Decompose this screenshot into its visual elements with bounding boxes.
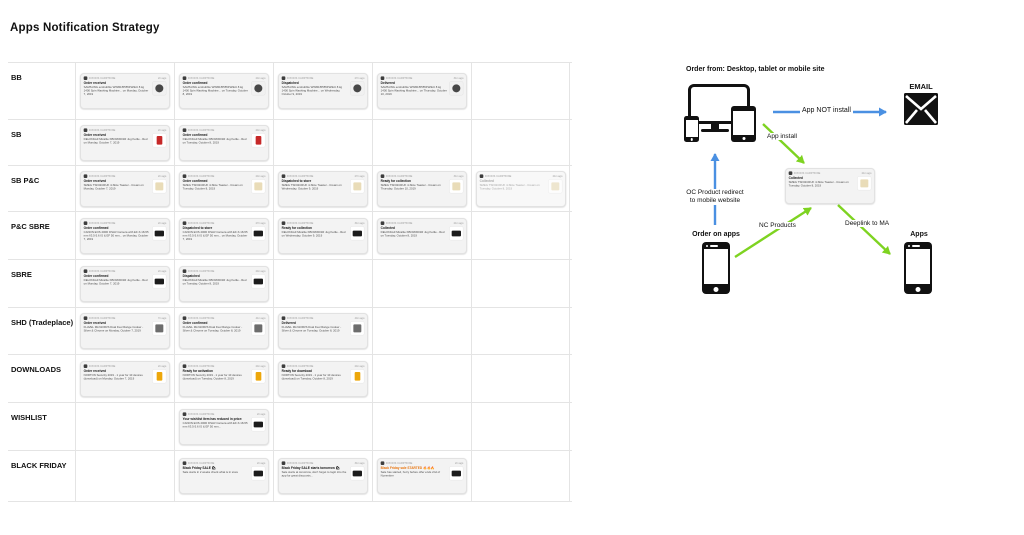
notification-header: DIXONS CARPHONE21m ago: [381, 221, 464, 225]
app-name: DIXONS CARPHONE: [188, 269, 214, 272]
timestamp: 2m ago: [158, 174, 166, 177]
row-label: P&C SBRE: [8, 212, 75, 259]
app-name: DIXONS CARPHONE: [386, 462, 412, 465]
notification-card: DIXONS CARPHONE2m agoOrder receivedNORTO…: [80, 361, 170, 397]
notification-header: DIXONS CARPHONE2m ago: [84, 221, 167, 225]
notification-message: SMEG TSF02CRUK 4-Slice Toaster - Cream o…: [282, 183, 349, 190]
notification-card-inner: DIXONS CARPHONE31m agoReady for collecti…: [378, 172, 466, 206]
notification-message: CANON EOS 200D DSLR Camera with EF-S 18-…: [183, 230, 250, 240]
notification-body-row: Black Friday sale STARTED 🔥🔥🔥Sale has st…: [381, 466, 464, 480]
oc-redirect-line1: OC Product redirect: [675, 189, 755, 197]
notification-title: Dispatched to store: [282, 179, 349, 183]
arrow-label-deeplink: Deeplink to MA: [843, 220, 891, 227]
timestamp: 27m ago: [355, 174, 365, 177]
notification-message: NORTON Security 2019 - 1 year for 10 dev…: [183, 373, 250, 380]
notification-card: DIXONS CARPHONE21m agoCollectedSMEG TSF0…: [785, 168, 875, 204]
product-thumbnail-shape: [353, 324, 361, 332]
notification-title: Order received: [84, 133, 151, 137]
matrix-cell: [471, 355, 570, 402]
app-icon: [183, 221, 187, 225]
page-title: Apps Notification Strategy: [10, 22, 160, 34]
notification-message: DELONGHI Micalite KBOM3001R Jug Kettle -…: [282, 230, 349, 237]
notification-title: Your wishlist item has reduced in price:: [183, 417, 250, 421]
timestamp: 24m ago: [256, 174, 266, 177]
notification-card: DIXONS CARPHONE24m agoOrder confirmedSME…: [179, 171, 269, 207]
notification-header: DIXONS CARPHONE24m ago: [183, 128, 266, 132]
notification-header: DIXONS CARPHONE24m ago: [183, 364, 266, 368]
notification-title: Order confirmed: [183, 179, 250, 183]
notification-message: DELONGHI Micalite KBOM3001R Jug Kettle -…: [84, 137, 151, 144]
app-icon: [183, 174, 187, 178]
notification-text: Order receivedSMEG TSF02CRUK 4-Slice Toa…: [84, 179, 151, 193]
notification-card-inner: DIXONS CARPHONE2m agoOrder receivedDELON…: [81, 126, 169, 160]
app-name: DIXONS CARPHONE: [89, 317, 115, 320]
notification-card-inner: DIXONS CARPHONE31m agoBlack Friday SALE …: [279, 459, 367, 493]
arrow-deeplink: [838, 205, 890, 254]
app-icon: [183, 76, 187, 80]
product-thumbnail: [350, 226, 364, 240]
matrix-cell: [372, 260, 471, 307]
notification-body-row: Order confirmedDELONGHI Micalite KBOM300…: [84, 274, 167, 288]
product-thumbnail-shape: [155, 84, 163, 92]
app-icon: [282, 76, 286, 80]
email-label: EMAIL: [903, 82, 939, 91]
matrix-cell: DIXONS CARPHONE24m agoOrder confirmedSME…: [174, 166, 273, 211]
product-thumbnail: [251, 226, 265, 240]
matrix-cell: DIXONS CARPHONE27m agoDispatchedSAMSUNG …: [273, 63, 372, 119]
product-thumbnail-shape: [254, 278, 263, 284]
app-name: DIXONS CARPHONE: [386, 174, 412, 177]
product-thumbnail: [152, 81, 166, 95]
app-icon: [84, 174, 88, 178]
notification-header: DIXONS CARPHONE31m ago: [381, 76, 464, 80]
app-name: DIXONS CARPHONE: [188, 317, 214, 320]
notification-card-inner: DIXONS CARPHONE2m agoOrder receivedSMEG …: [81, 172, 169, 206]
product-thumbnail: [152, 133, 166, 147]
notification-body-row: Your wishlist item has reduced in price:…: [183, 417, 266, 431]
notification-message: Sale starts in 2 weeks check what is in …: [183, 470, 250, 473]
notification-message: FLAVEL MLN10FRS Dual Fuel Range Cooker -…: [84, 325, 151, 332]
notification-message: CANON EOS 200D DSLR Camera with EF-S 18-…: [183, 421, 250, 428]
smartphone-icon-apps: [904, 242, 932, 294]
table-row: P&C SBREDIXONS CARPHONE2m agoOrder confi…: [8, 211, 572, 259]
notification-card-inner: DIXONS CARPHONE21m agoCollectedSMEG TSF0…: [786, 169, 874, 203]
app-name: DIXONS CARPHONE: [188, 128, 214, 131]
phone-icon: [684, 116, 699, 142]
notification-message: DELONGHI Micalite KBOM3001R Jug Kettle -…: [183, 278, 250, 285]
product-thumbnail-shape: [254, 230, 263, 236]
notification-body-row: Order confirmedSAMSUNG ecobubble WW80J55…: [183, 81, 266, 95]
notification-text: Order receivedDELONGHI Micalite KBOM3001…: [84, 133, 151, 147]
app-name: DIXONS CARPHONE: [287, 174, 313, 177]
notification-header: DIXONS CARPHONE24m ago: [183, 174, 266, 178]
notification-title: Order confirmed: [183, 133, 250, 137]
notification-card: DIXONS CARPHONE2m agoOrder receivedSAMSU…: [80, 73, 170, 109]
matrix-cell: DIXONS CARPHONE24m agoReady for download…: [273, 355, 372, 402]
app-name: DIXONS CARPHONE: [287, 462, 313, 465]
notification-body-row: Order confirmedSMEG TSF02CRUK 4-Slice To…: [183, 179, 266, 193]
product-thumbnail: [548, 179, 562, 193]
matrix-cell: [471, 212, 570, 259]
matrix-cell: [471, 120, 570, 165]
notification-header: DIXONS CARPHONE2m ago: [84, 128, 167, 132]
matrix-cell: [273, 260, 372, 307]
app-name: DIXONS CARPHONE: [287, 77, 313, 80]
product-thumbnail-shape: [353, 470, 362, 476]
notification-text: Order receivedSAMSUNG ecobubble WW80J555…: [84, 81, 151, 95]
app-icon: [282, 174, 286, 178]
notification-card-inner: DIXONS CARPHONE24m agoOrder confirmedSME…: [180, 172, 268, 206]
notification-body-row: Black Friday SALE 🛍Sale starts in 2 week…: [183, 466, 266, 480]
app-icon: [381, 221, 385, 225]
notification-text: DispatchedDELONGHI Micalite KBOM3001R Ju…: [183, 274, 250, 288]
notification-header: DIXONS CARPHONE21m ago: [479, 174, 562, 178]
notification-card: DIXONS CARPHONE2m agoOrder receivedSMEG …: [80, 171, 170, 207]
row-label: WISHLIST: [8, 403, 75, 450]
notification-message: SMEG TSF02CRUK 4-Slice Toaster - Cream o…: [789, 180, 856, 187]
app-name: DIXONS CARPHONE: [386, 77, 412, 80]
table-row: BBDIXONS CARPHONE2m agoOrder receivedSAM…: [8, 62, 572, 119]
table-row: WISHLISTDIXONS CARPHONE2m agoYour wishli…: [8, 402, 572, 450]
product-thumbnail: [350, 179, 364, 193]
notification-matrix: BBDIXONS CARPHONE2m agoOrder receivedSAM…: [8, 62, 572, 502]
notification-body-row: DeliveredFLAVEL MLN10FRS Dual Fuel Range…: [282, 321, 365, 335]
notification-header: DIXONS CARPHONE31m ago: [282, 461, 365, 465]
notification-header: DIXONS CARPHONE2m ago: [84, 76, 167, 80]
notification-card: DIXONS CARPHONE24m agoOrder confirmedDEL…: [179, 125, 269, 161]
notification-header: DIXONS CARPHONE27m ago: [282, 174, 365, 178]
matrix-cell: DIXONS CARPHONE2m agoOrder receivedDELON…: [75, 120, 174, 165]
matrix-cell: DIXONS CARPHONE21m agoCollectedSMEG TSF0…: [471, 166, 570, 211]
table-row: SBDIXONS CARPHONE2m agoOrder receivedDEL…: [8, 119, 572, 165]
timestamp: 2m ago: [158, 269, 166, 272]
notification-header: DIXONS CARPHONE24m ago: [282, 364, 365, 368]
notification-title: Ready for collection: [381, 179, 448, 183]
product-thumbnail-shape: [551, 182, 559, 190]
notification-body-row: CollectedSMEG TSF02CRUK 4-Slice Toaster …: [479, 179, 562, 193]
notification-card-inner: DIXONS CARPHONE2m agoBlack Friday SALE 🛍…: [180, 459, 268, 493]
matrix-cell: DIXONS CARPHONE2m agoOrder receivedSAMSU…: [75, 63, 174, 119]
notification-header: DIXONS CARPHONE2m ago: [84, 364, 167, 368]
arrow-nc-products: [735, 208, 811, 257]
app-name: DIXONS CARPHONE: [89, 128, 115, 131]
product-thumbnail-shape: [452, 84, 460, 92]
matrix-cell: DIXONS CARPHONE7m agoOrder receivedFLAVE…: [75, 308, 174, 354]
notification-card-inner: DIXONS CARPHONE24m agoReady for download…: [279, 362, 367, 396]
product-thumbnail-shape: [156, 371, 162, 380]
product-thumbnail: [152, 369, 166, 383]
notification-card: DIXONS CARPHONE31m agoReady for collecti…: [278, 218, 368, 254]
matrix-cell: DIXONS CARPHONE2m agoOrder receivedSMEG …: [75, 166, 174, 211]
notification-card: DIXONS CARPHONE31m agoDeliveredSAMSUNG e…: [377, 73, 467, 109]
notification-text: Your wishlist item has reduced in price:…: [183, 417, 250, 431]
notification-text: CollectedDELONGHI Micalite KBOM3001R Jug…: [381, 226, 448, 240]
timestamp: 24m ago: [256, 269, 266, 272]
notification-card: DIXONS CARPHONE21m agoCollectedDELONGHI …: [377, 218, 467, 254]
product-thumbnail-shape: [254, 84, 262, 92]
product-thumbnail: [152, 226, 166, 240]
product-thumbnail: [152, 321, 166, 335]
notification-text: Black Friday SALE 🛍Sale starts in 2 week…: [183, 466, 250, 480]
product-thumbnail: [251, 274, 265, 288]
notification-header: DIXONS CARPHONE27m ago: [282, 76, 365, 80]
matrix-cell: DIXONS CARPHONE27m agoDispatched to stor…: [174, 212, 273, 259]
notification-body-row: Ready for collectionDELONGHI Micalite KB…: [282, 226, 365, 240]
table-row: SHD (Tradeplace)DIXONS CARPHONE7m agoOrd…: [8, 307, 572, 354]
timestamp: 27m ago: [355, 77, 365, 80]
timestamp: 31m ago: [454, 77, 464, 80]
notification-title: Order confirmed: [84, 274, 151, 278]
app-icon: [84, 269, 88, 273]
notification-message: SAMSUNG ecobubble WW80J5555FW/EU 8 kg 14…: [183, 85, 250, 95]
matrix-cell: DIXONS CARPHONE2m agoOrder receivedNORTO…: [75, 355, 174, 402]
matrix-cell: DIXONS CARPHONE24m agoDispatchedDELONGHI…: [174, 260, 273, 307]
notification-body-row: Dispatched to storeSMEG TSF02CRUK 4-Slic…: [282, 179, 365, 193]
diagram-title: Order from: Desktop, tablet or mobile si…: [686, 66, 824, 73]
notification-text: CollectedSMEG TSF02CRUK 4-Slice Toaster …: [479, 179, 546, 193]
app-icon: [381, 174, 385, 178]
notification-title: Order confirmed: [84, 226, 151, 230]
notification-body-row: Order receivedSMEG TSF02CRUK 4-Slice Toa…: [84, 179, 167, 193]
app-icon: [84, 364, 88, 368]
timestamp: 21m ago: [862, 172, 872, 175]
notification-card-inner: DIXONS CARPHONE24m agoOrder confirmedSAM…: [180, 74, 268, 108]
notification-text: Ready for downloadNORTON Security 2019 -…: [282, 369, 349, 383]
desktop-base: [701, 129, 729, 132]
notification-message: DELONGHI Micalite KBOM3001R Jug Kettle -…: [183, 137, 250, 144]
product-thumbnail: [449, 466, 463, 480]
app-name: DIXONS CARPHONE: [287, 364, 313, 367]
notification-body-row: CollectedDELONGHI Micalite KBOM3001R Jug…: [381, 226, 464, 240]
timestamp: 44m ago: [355, 317, 365, 320]
matrix-cell: [372, 403, 471, 450]
product-thumbnail-shape: [452, 182, 460, 190]
notification-header: DIXONS CARPHONE31m ago: [381, 174, 464, 178]
notification-message: SAMSUNG ecobubble WW80J5555FW/EU 8 kg 14…: [282, 85, 349, 95]
notification-card: DIXONS CARPHONE2m agoOrder receivedDELON…: [80, 125, 170, 161]
notification-text: Ready for collectionSMEG TSF02CRUK 4-Sli…: [381, 179, 448, 193]
notification-card: DIXONS CARPHONE2m agoYour wishlist item …: [179, 409, 269, 445]
matrix-cell: DIXONS CARPHONE2m agoOrder confirmedCANO…: [75, 212, 174, 259]
notification-card-inner: DIXONS CARPHONE2m agoYour wishlist item …: [180, 410, 268, 444]
matrix-cell: DIXONS CARPHONE21m agoCollectedDELONGHI …: [372, 212, 471, 259]
matrix-cell: [75, 403, 174, 450]
notification-message: Sale has started, hurry before offer end…: [381, 470, 448, 477]
app-icon: [381, 76, 385, 80]
matrix-cell: [471, 451, 570, 501]
product-thumbnail-shape: [452, 230, 461, 236]
product-thumbnail: [152, 179, 166, 193]
notification-body-row: Order receivedSAMSUNG ecobubble WW80J555…: [84, 81, 167, 95]
notification-text: Order confirmedFLAVEL MLN10FRS Dual Fuel…: [183, 321, 250, 335]
timestamp: 2m ago: [257, 462, 265, 465]
arrow-label-app-not-install: App NOT install: [800, 107, 853, 114]
notification-card: DIXONS CARPHONE7m agoOrder receivedFLAVE…: [80, 313, 170, 349]
matrix-cell: [471, 260, 570, 307]
timestamp: 31m ago: [454, 174, 464, 177]
app-name: DIXONS CARPHONE: [188, 462, 214, 465]
notification-card: DIXONS CARPHONE24m agoOrder confirmedSAM…: [179, 73, 269, 109]
app-name: DIXONS CARPHONE: [89, 174, 115, 177]
row-label: SBRE: [8, 260, 75, 307]
product-thumbnail-shape: [155, 182, 163, 190]
product-thumbnail: [251, 81, 265, 95]
notification-card: DIXONS CARPHONE27m agoDispatched to stor…: [278, 171, 368, 207]
email-icon: [904, 93, 938, 125]
matrix-cell: DIXONS CARPHONE44m agoDeliveredFLAVEL ML…: [273, 308, 372, 354]
notification-body-row: DispatchedDELONGHI Micalite KBOM3001R Ju…: [183, 274, 266, 288]
notification-card-inner: DIXONS CARPHONE31m agoDeliveredSAMSUNG e…: [378, 74, 466, 108]
notification-text: Ready for collectionDELONGHI Micalite KB…: [282, 226, 349, 240]
notification-message: SAMSUNG ecobubble WW80J5555FW/EU 8 kg 14…: [381, 85, 448, 95]
timestamp: 31m ago: [355, 221, 365, 224]
product-thumbnail: [350, 321, 364, 335]
notification-body-row: Order confirmedCANON EOS 200D DSLR Camer…: [84, 226, 167, 240]
table-row: SBREDIXONS CARPHONE2m agoOrder confirmed…: [8, 259, 572, 307]
app-icon: [282, 364, 286, 368]
product-thumbnail-shape: [354, 371, 360, 380]
notification-title: Dispatched to store: [183, 226, 250, 230]
notification-message: FLAVEL MLN10FRS Dual Fuel Range Cooker -…: [183, 325, 250, 332]
product-thumbnail: [251, 369, 265, 383]
table-row: BLACK FRIDAYDIXONS CARPHONE2m agoBlack F…: [8, 450, 572, 502]
arrow-label-oc-redirect: OC Product redirect to mobile website: [675, 189, 755, 205]
matrix-cell: DIXONS CARPHONE41m agoOrder confirmedFLA…: [174, 308, 273, 354]
notification-body-row: CollectedSMEG TSF02CRUK 4-Slice Toaster …: [789, 176, 872, 190]
arrow-label-nc-products: NC Products: [757, 222, 798, 229]
notification-card-inner: DIXONS CARPHONE24m agoDispatchedDELONGHI…: [180, 267, 268, 301]
app-icon: [84, 221, 88, 225]
product-thumbnail: [449, 179, 463, 193]
product-thumbnail: [350, 369, 364, 383]
notification-body-row: Black Friday SALE starts tomorrow 🛍Sale …: [282, 466, 365, 480]
notification-card-inner: DIXONS CARPHONE41m agoOrder confirmedFLA…: [180, 314, 268, 348]
arrow-label-app-install: App install: [765, 133, 799, 140]
notification-text: Order confirmedDELONGHI Micalite KBOM300…: [183, 133, 250, 147]
app-icon: [183, 128, 187, 132]
product-thumbnail: [251, 133, 265, 147]
notification-card-inner: DIXONS CARPHONE2m agoBlack Friday sale S…: [378, 459, 466, 493]
notification-card-inner: DIXONS CARPHONE2m agoOrder receivedNORTO…: [81, 362, 169, 396]
product-thumbnail-shape: [255, 371, 261, 380]
apps-label: Apps: [892, 231, 946, 238]
notification-text: DispatchedSAMSUNG ecobubble WW80J5555FW/…: [282, 81, 349, 95]
timestamp: 21m ago: [454, 221, 464, 224]
notification-title: Dispatched: [183, 274, 250, 278]
matrix-cell: [273, 120, 372, 165]
notification-card-inner: DIXONS CARPHONE44m agoDeliveredFLAVEL ML…: [279, 314, 367, 348]
product-thumbnail: [251, 179, 265, 193]
product-thumbnail: [449, 226, 463, 240]
oc-redirect-line2: to mobile website: [675, 197, 755, 205]
product-thumbnail-shape: [452, 470, 461, 476]
notification-header: DIXONS CARPHONE24m ago: [183, 76, 266, 80]
notification-title: Ready for collection: [282, 226, 349, 230]
product-thumbnail: [857, 176, 871, 190]
matrix-cell: DIXONS CARPHONE31m agoReady for collecti…: [372, 166, 471, 211]
app-icon: [183, 269, 187, 273]
notification-title: Order received: [84, 179, 151, 183]
app-icon: [282, 221, 286, 225]
matrix-cell: [471, 63, 570, 119]
notification-card-inner: DIXONS CARPHONE24m agoOrder confirmedDEL…: [180, 126, 268, 160]
notification-header: DIXONS CARPHONE44m ago: [282, 316, 365, 320]
product-thumbnail-shape: [353, 182, 361, 190]
app-icon: [84, 316, 88, 320]
notification-text: Order receivedNORTON Security 2019 - 1 y…: [84, 369, 151, 383]
product-thumbnail: [449, 81, 463, 95]
app-name: DIXONS CARPHONE: [89, 364, 115, 367]
notification-text: Black Friday SALE starts tomorrow 🛍Sale …: [282, 466, 349, 480]
timestamp: 2m ago: [455, 462, 463, 465]
matrix-cell: DIXONS CARPHONE2m agoBlack Friday sale S…: [372, 451, 471, 501]
app-icon: [282, 461, 286, 465]
notification-card: DIXONS CARPHONE2m agoBlack Friday sale S…: [377, 458, 467, 494]
product-thumbnail-shape: [255, 135, 261, 144]
notification-card-inner: DIXONS CARPHONE21m agoCollectedSMEG TSF0…: [477, 172, 565, 206]
notification-message: CANON EOS 200D DSLR Camera with EF-S 18-…: [84, 230, 151, 240]
matrix-cell: [372, 120, 471, 165]
timestamp: 21m ago: [552, 174, 562, 177]
app-name: DIXONS CARPHONE: [386, 221, 412, 224]
notification-header: DIXONS CARPHONE2m ago: [183, 412, 266, 416]
row-label: SB P&C: [8, 166, 75, 211]
device-cluster: [684, 80, 760, 144]
notification-body-row: Ready for activationNORTON Security 2019…: [183, 369, 266, 383]
app-name: DIXONS CARPHONE: [188, 412, 214, 415]
app-icon: [282, 316, 286, 320]
notification-card-inner: DIXONS CARPHONE27m agoDispatched to stor…: [279, 172, 367, 206]
row-label: SHD (Tradeplace): [8, 308, 75, 354]
notification-card-inner: DIXONS CARPHONE21m agoCollectedDELONGHI …: [378, 219, 466, 253]
matrix-cell: [471, 308, 570, 354]
app-icon: [183, 461, 187, 465]
matrix-cell: [372, 308, 471, 354]
notification-title: Ready for activation: [183, 369, 250, 373]
notification-card: DIXONS CARPHONE27m agoDispatchedSAMSUNG …: [278, 73, 368, 109]
notification-card-inner: DIXONS CARPHONE31m agoReady for collecti…: [279, 219, 367, 253]
app-name: DIXONS CARPHONE: [287, 221, 313, 224]
matrix-cell: DIXONS CARPHONE31m agoDeliveredSAMSUNG e…: [372, 63, 471, 119]
notification-card-inner: DIXONS CARPHONE2m agoOrder confirmedDELO…: [81, 267, 169, 301]
notification-card-inner: DIXONS CARPHONE7m agoOrder receivedFLAVE…: [81, 314, 169, 348]
matrix-cell: [471, 403, 570, 450]
timestamp: 2m ago: [158, 128, 166, 131]
notification-body-row: DeliveredSAMSUNG ecobubble WW80J5555FW/E…: [381, 81, 464, 95]
timestamp: 41m ago: [256, 317, 266, 320]
table-row: DOWNLOADSDIXONS CARPHONE2m agoOrder rece…: [8, 354, 572, 402]
app-name: DIXONS CARPHONE: [188, 221, 214, 224]
matrix-cell: [273, 403, 372, 450]
notification-text: Order confirmedDELONGHI Micalite KBOM300…: [84, 274, 151, 288]
timestamp: 24m ago: [256, 128, 266, 131]
notification-card: DIXONS CARPHONE44m agoDeliveredFLAVEL ML…: [278, 313, 368, 349]
app-icon: [183, 412, 187, 416]
notification-card: DIXONS CARPHONE2m agoOrder confirmedDELO…: [80, 266, 170, 302]
notification-header: DIXONS CARPHONE2m ago: [84, 269, 167, 273]
notification-text: Dispatched to storeCANON EOS 200D DSLR C…: [183, 226, 250, 240]
timestamp: 2m ago: [158, 221, 166, 224]
product-thumbnail: [350, 81, 364, 95]
notification-header: DIXONS CARPHONE31m ago: [282, 221, 365, 225]
notification-card: DIXONS CARPHONE41m agoOrder confirmedFLA…: [179, 313, 269, 349]
app-name: DIXONS CARPHONE: [188, 364, 214, 367]
timestamp: 2m ago: [257, 412, 265, 415]
matrix-cell: DIXONS CARPHONE31m agoBlack Friday SALE …: [273, 451, 372, 501]
timestamp: 24m ago: [355, 364, 365, 367]
notification-text: Ready for activationNORTON Security 2019…: [183, 369, 250, 383]
notification-header: DIXONS CARPHONE7m ago: [84, 316, 167, 320]
